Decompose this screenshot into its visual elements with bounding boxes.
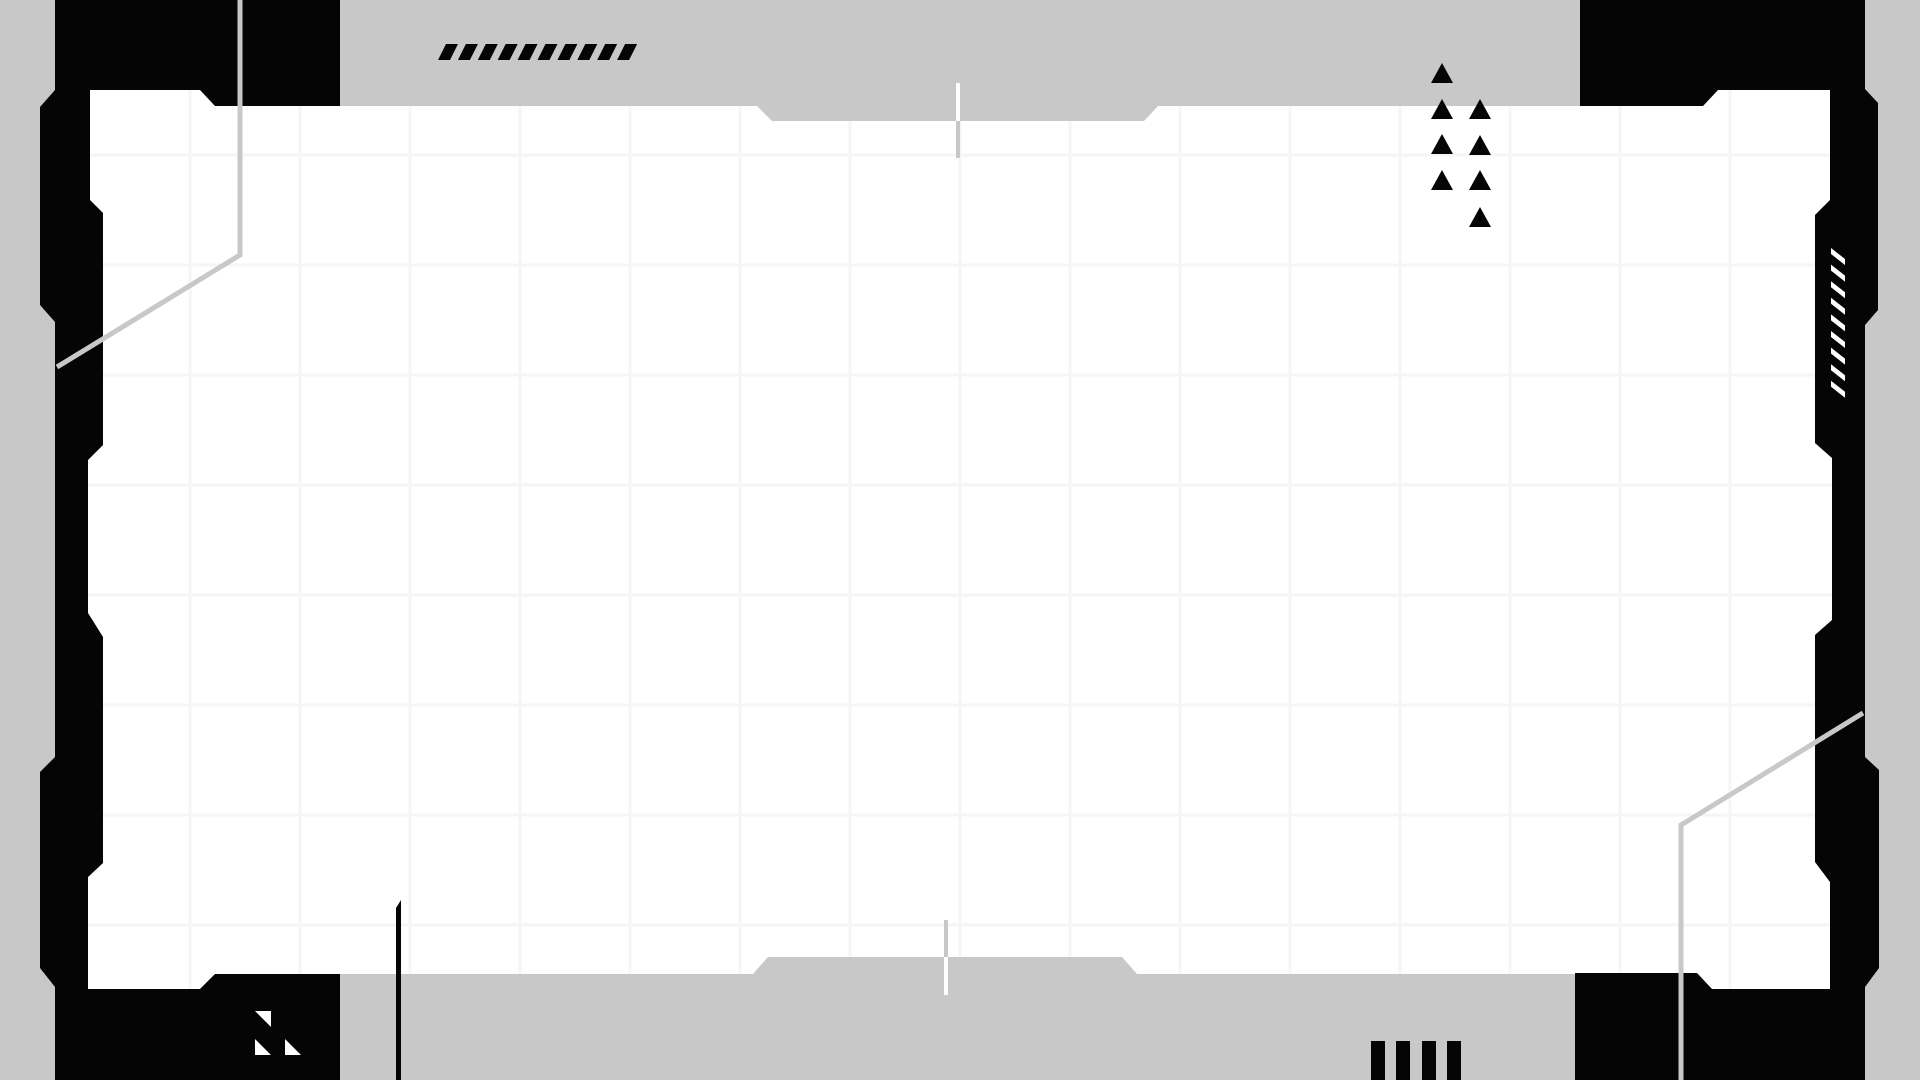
bar-mark-icon bbox=[1396, 1041, 1410, 1080]
bottom-center-tick bbox=[944, 957, 948, 995]
hud-frame bbox=[0, 0, 1920, 1080]
bottom-center-tick bbox=[944, 920, 948, 957]
bar-mark-icon bbox=[1371, 1041, 1385, 1080]
top-center-tick bbox=[956, 121, 960, 158]
top-center-tick bbox=[956, 83, 960, 121]
vertical-line-decoration bbox=[396, 900, 401, 1080]
bar-mark-icon bbox=[1422, 1041, 1436, 1080]
bar-mark-icon bbox=[1447, 1041, 1461, 1080]
